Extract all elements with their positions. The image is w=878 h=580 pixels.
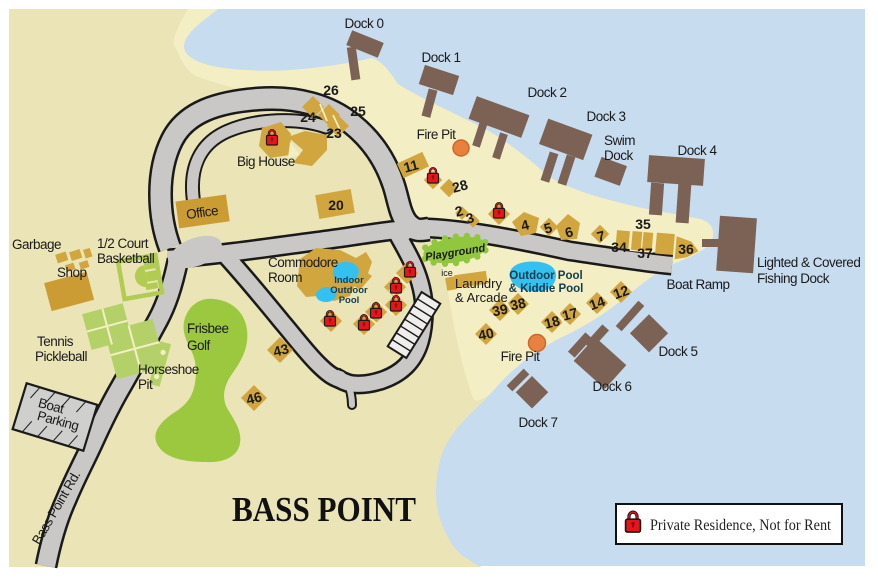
svg-text:25: 25 [350, 103, 366, 119]
svg-text:Dock 6: Dock 6 [592, 379, 631, 394]
svg-text:BASS POINT: BASS POINT [232, 490, 416, 529]
svg-text:Dock 0: Dock 0 [344, 16, 383, 31]
svg-text:Private Residence, Not for Ren: Private Residence, Not for Rent [650, 517, 831, 534]
svg-text:ice: ice [441, 268, 453, 278]
svg-text:Dock 2: Dock 2 [527, 85, 566, 100]
svg-text:1/2 Court: 1/2 Court [97, 236, 149, 251]
svg-text:Fire Pit: Fire Pit [501, 349, 541, 364]
svg-text:Dock 5: Dock 5 [658, 344, 697, 359]
svg-text:Tennis: Tennis [37, 334, 74, 349]
svg-text:Shop: Shop [57, 265, 87, 280]
svg-text:Pit: Pit [138, 377, 153, 392]
svg-text:35: 35 [635, 216, 651, 232]
svg-text:Boat Ramp: Boat Ramp [666, 277, 729, 292]
svg-text:Laundry: Laundry [455, 276, 502, 291]
svg-text:& Kiddie Pool: & Kiddie Pool [509, 283, 584, 295]
svg-text:Room: Room [268, 270, 302, 285]
svg-text:Pool: Pool [339, 295, 360, 306]
svg-text:Outdoor Pool: Outdoor Pool [509, 270, 582, 282]
svg-text:37: 37 [637, 245, 653, 261]
svg-text:Dock: Dock [604, 148, 634, 163]
svg-text:Swim: Swim [604, 133, 635, 148]
svg-text:Dock 4: Dock 4 [677, 143, 717, 158]
svg-text:Basketball: Basketball [97, 251, 155, 266]
svg-text:Lighted & Covered: Lighted & Covered [757, 255, 860, 270]
svg-text:Pickleball: Pickleball [35, 349, 88, 364]
svg-text:24: 24 [300, 109, 316, 125]
svg-text:Dock 7: Dock 7 [518, 415, 557, 430]
svg-text:Horseshoe: Horseshoe [138, 362, 199, 377]
svg-text:Fishing Dock: Fishing Dock [757, 271, 830, 286]
svg-text:Golf: Golf [187, 338, 211, 353]
svg-text:Frisbee: Frisbee [187, 321, 229, 336]
svg-text:Fire Pit: Fire Pit [417, 127, 457, 142]
svg-text:Commodore: Commodore [268, 255, 338, 270]
svg-text:36: 36 [678, 241, 694, 257]
svg-text:Garbage: Garbage [12, 237, 61, 252]
svg-text:Dock 3: Dock 3 [586, 109, 625, 124]
svg-text:34: 34 [611, 239, 627, 255]
svg-text:20: 20 [328, 197, 344, 213]
svg-text:23: 23 [326, 125, 342, 141]
svg-text:26: 26 [323, 82, 339, 98]
svg-text:Big House: Big House [237, 154, 295, 169]
svg-text:Dock 1: Dock 1 [421, 50, 460, 65]
